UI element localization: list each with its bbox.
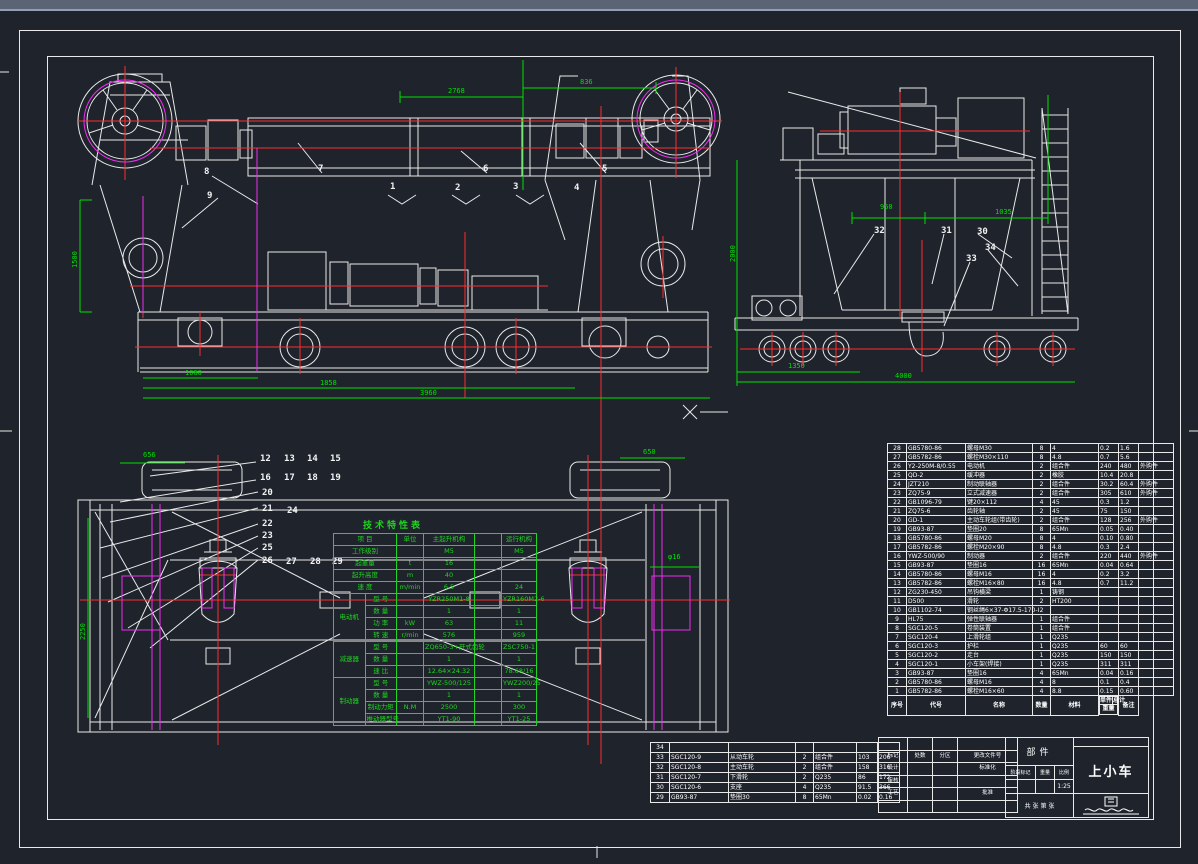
bom-cell: ZG230-450: [907, 588, 966, 597]
bom-cell: 8: [888, 624, 907, 633]
bom-cell: [1139, 471, 1174, 480]
parts-list-table: 28GB5780-86螺母M30840.21.627GB5782-86螺栓M30…: [887, 443, 1174, 716]
bom-cell: GB1102-74: [907, 606, 966, 615]
bom-cell: ZQ75-6: [907, 507, 966, 516]
tech-item-cell: 数 量: [365, 654, 397, 666]
bom-ext-cell: 下滑轮: [729, 773, 796, 783]
drawing-name-cell: 上小车: [1073, 746, 1149, 794]
bom-cell: 0.05: [1099, 525, 1119, 534]
bom-header-row: 序号代号名称数量材料单件总计重量备注: [888, 696, 1174, 716]
bom-cell: 螺母M30: [966, 444, 1033, 453]
bom-cell: 0.04: [1099, 669, 1119, 678]
table-row: 9HL75弹性联轴器1组合件: [888, 615, 1174, 624]
table-row: 22GB1096-79键20×1124450.31.2: [888, 498, 1174, 507]
table-row: 7SGC120-4上滑轮组1Q235: [888, 633, 1174, 642]
bom-header-cell: 代号: [907, 696, 966, 716]
tech-value-cell: 1: [424, 606, 475, 618]
bom-cell: 20.8: [1119, 471, 1139, 480]
bom-ext-cell: 组合件: [814, 753, 857, 763]
callout-number: 30: [977, 228, 988, 237]
bom-cell: Q235: [1051, 651, 1099, 660]
tech-value-cell: [475, 654, 502, 666]
cad-drawing-canvas[interactable]: 1234567893031323334121314151617181920212…: [0, 0, 1198, 864]
bom-cell: 1: [1033, 588, 1051, 597]
bom-ext-cell: 29: [651, 793, 670, 803]
bom-cell: 0.3: [1099, 498, 1119, 507]
bom-cell: 4: [1033, 678, 1051, 687]
bom-cell: 256: [1119, 516, 1139, 525]
callout-number: 23: [262, 532, 273, 541]
bom-cell: 4: [1051, 570, 1099, 579]
bom-cell: SGC120-2: [907, 651, 966, 660]
bom-cell: 0.4: [1119, 678, 1139, 687]
bom-cell: 螺栓M16×60: [966, 687, 1033, 696]
bom-cell: 28: [888, 444, 907, 453]
bom-cell: 4: [1033, 687, 1051, 696]
bom-cell: 2: [1033, 552, 1051, 561]
manufacturer-stamp-cell: [1073, 793, 1149, 818]
bom-cell: Q235: [1051, 633, 1099, 642]
bom-cell: 27: [888, 453, 907, 462]
revision-cell: [908, 788, 933, 801]
callout-number: 7: [318, 165, 323, 174]
tech-header-cell: 主起升机构: [424, 534, 475, 546]
tech-value-cell: YT1-90: [424, 714, 475, 726]
table-row: 15GB93-87垫圈161665Mn0.040.64: [888, 561, 1174, 570]
table-row: 28GB5780-86螺母M30840.21.6: [888, 444, 1174, 453]
tech-header-cell: [475, 534, 502, 546]
table-row: 23ZQ75-9立式减速器2组合件305610外购件: [888, 489, 1174, 498]
tech-value-cell: [397, 546, 424, 558]
tech-value-cell: [502, 570, 537, 582]
tech-value-cell: 576: [424, 630, 475, 642]
callout-number: 33: [966, 255, 977, 264]
bom-cell: 4: [1033, 669, 1051, 678]
bom-cell: 4: [1033, 498, 1051, 507]
bom-cell: Q235: [1051, 642, 1099, 651]
bom-cell: 0.40: [1119, 525, 1139, 534]
callout-number: 16: [260, 474, 271, 483]
bom-cell: GB5780-86: [907, 678, 966, 687]
bom-cell: 螺栓M30×110: [966, 453, 1033, 462]
bom-cell: GB1096-79: [907, 498, 966, 507]
callout-number: 1: [390, 183, 395, 192]
tech-value-cell: [397, 666, 424, 678]
bom-cell: 橡胶: [1051, 471, 1099, 480]
bom-cell: 2: [1033, 480, 1051, 489]
bom-cell: [1139, 453, 1174, 462]
bom-ext-cell: 2: [796, 773, 814, 783]
bom-cell: [1139, 525, 1174, 534]
bom-cell: 11.2: [1119, 579, 1139, 588]
bom-cell: 11: [888, 597, 907, 606]
bom-cell: 45: [1051, 498, 1099, 507]
weight-label: 重量: [1035, 765, 1055, 780]
revision-cell: [908, 738, 933, 751]
bom-ext-cell: [857, 743, 878, 753]
tech-value-cell: [475, 618, 502, 630]
bom-ext-cell: [814, 743, 857, 753]
bom-cell: [1139, 606, 1174, 615]
bom-ext-cell: 103: [857, 753, 878, 763]
callout-number: 12: [260, 455, 271, 464]
tech-value-cell: [475, 546, 502, 558]
bom-cell: 0.10: [1099, 534, 1119, 543]
bom-cell: 制动器: [966, 552, 1033, 561]
revision-cell: [933, 763, 958, 776]
callout-number: 34: [985, 244, 996, 253]
tech-item-cell: 转 速: [365, 630, 397, 642]
bom-cell: 1: [1033, 624, 1051, 633]
parts-list: 28GB5780-86螺母M30840.21.627GB5782-86螺栓M30…: [887, 443, 1174, 716]
tech-value-cell: 40: [424, 570, 475, 582]
bom-weight-header-cell: 单件总计重量: [1099, 696, 1118, 715]
dimension-label: 656: [143, 452, 156, 459]
bom-cell: 螺栓M20×90: [966, 543, 1033, 552]
bom-cell: GB5780-86: [907, 444, 966, 453]
tech-row: 起升高度m40: [334, 570, 537, 582]
callout-number: 28: [310, 558, 321, 567]
bom-cell: 弹性联轴器: [966, 615, 1033, 624]
bom-cell: 外购件: [1139, 552, 1174, 561]
tech-value-cell: 1: [502, 606, 537, 618]
bom-cell: 60: [1099, 642, 1119, 651]
revision-row: 审核: [879, 775, 1018, 788]
callout-number: 4: [574, 184, 579, 193]
bom-cell: 65Mn: [1051, 669, 1099, 678]
bom-cell: SGC120-5: [907, 624, 966, 633]
tech-item-cell: 型 号: [365, 594, 397, 606]
bom-cell: [1139, 561, 1174, 570]
tech-value-cell: r/min: [397, 630, 424, 642]
revision-cell: [908, 763, 933, 776]
bom-ext-cell: GB93-87: [670, 793, 729, 803]
bom-cell: [1099, 588, 1119, 597]
callout-number: 26: [262, 557, 273, 566]
revision-cell: [879, 800, 908, 813]
table-row: 32SGC120-8主动车轮2组合件158316: [651, 763, 900, 773]
bom-cell: 10.4: [1099, 471, 1119, 480]
tech-value-cell: 300: [502, 702, 537, 714]
bom-cell: [1099, 606, 1119, 615]
bom-cell: 5.6: [1119, 453, 1139, 462]
bom-cell: [1139, 642, 1174, 651]
tech-table-title: 技术特性表: [363, 518, 423, 531]
bom-cell: 螺栓M16×80: [966, 579, 1033, 588]
table-row: 24JZT210制动联轴器2组合件30.260.4外购件: [888, 480, 1174, 489]
bom-cell: GB5780-86: [907, 534, 966, 543]
callout-number: 14: [307, 455, 318, 464]
bom-cell: 1: [1033, 633, 1051, 642]
table-row: 20GD-1主动车轮组(带齿轮)2组合件128256外购件: [888, 516, 1174, 525]
tech-header-cell: 单位: [397, 534, 424, 546]
bom-cell: D500: [907, 597, 966, 606]
bom-cell: 2: [1033, 597, 1051, 606]
dimension-label: 1858: [320, 380, 337, 387]
bom-cell: 8: [1033, 543, 1051, 552]
bom-cell: 8: [1051, 678, 1099, 687]
tech-row: 减速器型 号ZQ650-3+开式齿轮ZSC750-1: [334, 642, 537, 654]
bom-cell: 2: [1033, 489, 1051, 498]
bom-cell: 0.64: [1119, 561, 1139, 570]
bom-cell: [1139, 660, 1174, 669]
table-row: 2GB5780-86螺母M16480.10.4: [888, 678, 1174, 687]
callout-number: 13: [284, 455, 295, 464]
tech-value-cell: 78.68/16: [502, 666, 537, 678]
bom-cell: 螺母M16: [966, 678, 1033, 687]
table-row: 25QD-2缓冲器2橡胶10.420.8: [888, 471, 1174, 480]
bom-cell: 16: [1033, 561, 1051, 570]
dimension-label: 836: [580, 79, 593, 86]
table-row: 5SGC120-2走台1Q235150150: [888, 651, 1174, 660]
bom-cell: [1139, 507, 1174, 516]
dimension-label: 2768: [448, 88, 465, 95]
tech-header-cell: 项 目: [334, 534, 397, 546]
tech-value-cell: [397, 594, 424, 606]
tech-value-cell: 1: [424, 690, 475, 702]
bom-cell: 220: [1099, 552, 1119, 561]
bom-header-cell: 数量: [1033, 696, 1051, 716]
tech-item-cell: 起升高度: [334, 570, 397, 582]
bom-cell: HT200: [1051, 597, 1099, 606]
bom-cell: [1099, 633, 1119, 642]
tech-value-cell: YT1-25: [502, 714, 537, 726]
tech-value-cell: [475, 702, 502, 714]
table-row: 14GB5780-86螺母M161640.23.2: [888, 570, 1174, 579]
bom-cell: 440: [1119, 552, 1139, 561]
bom-cell: 26: [888, 462, 907, 471]
bom-cell: 1: [1033, 642, 1051, 651]
bom-cell: 65Mn: [1051, 561, 1099, 570]
bom-cell: 610: [1119, 489, 1139, 498]
tech-value-cell: 63: [424, 618, 475, 630]
bom-cell: 卷筒装置: [966, 624, 1033, 633]
tech-value-cell: [397, 654, 424, 666]
dimension-label: 3960: [420, 390, 437, 397]
dimension-label: 1500: [72, 251, 79, 268]
tech-value-cell: [475, 594, 502, 606]
bom-cell: 垫圈16: [966, 669, 1033, 678]
callout-number: 6: [483, 165, 488, 174]
bom-cell: 钢丝绳6×37-Φ17.5-170-I: [966, 606, 1033, 615]
bom-ext-cell: 4: [796, 783, 814, 793]
tech-value-cell: YWZ-500/125: [424, 678, 475, 690]
tech-header-row: 项 目单位主起升机构运行机构: [334, 534, 537, 546]
tech-value-cell: YWZ200/25: [502, 678, 537, 690]
bom-cell: [1099, 615, 1119, 624]
bom-unit-weight-header: 单件: [1100, 697, 1113, 704]
tech-value-cell: 6.5: [424, 582, 475, 594]
revision-signature-grid: 标记处数分区更改文件号设计标准化审核工艺批准: [878, 737, 1018, 813]
tech-item-cell: 数 量: [365, 690, 397, 702]
tech-table: 项 目单位主起升机构运行机构工作级别M5M5起重量t16起升高度m40速 度m/…: [333, 533, 537, 726]
bom-cell: 8: [1033, 444, 1051, 453]
bom-cell: 2: [1033, 516, 1051, 525]
tech-value-cell: [475, 630, 502, 642]
bom-cell: [1139, 570, 1174, 579]
bom-cell: GB5782-86: [907, 543, 966, 552]
tech-row: 速 度m/min6.524: [334, 582, 537, 594]
bom-ext-cell: 垫圈30: [729, 793, 796, 803]
callout-number: 18: [307, 474, 318, 483]
table-row: 1GB5782-86螺栓M16×6048.80.150.60: [888, 687, 1174, 696]
tech-value-cell: ZSC750-1: [502, 642, 537, 654]
bom-cell: 组合件: [1051, 489, 1099, 498]
bom-cell: 0.1: [1099, 678, 1119, 687]
bom-cell: 立式减速器: [966, 489, 1033, 498]
bom-cell: 17: [888, 543, 907, 552]
bom-cell: 0.7: [1099, 579, 1119, 588]
stage-mark-label: 阶段标记: [1005, 765, 1036, 780]
tech-value-cell: 16: [424, 558, 475, 570]
bom-cell: [1139, 579, 1174, 588]
bom-cell: 0.2: [1099, 444, 1119, 453]
part-kind-cell: 部件: [1005, 737, 1074, 766]
bom-cell: [1139, 444, 1174, 453]
bom-cell: QD-2: [907, 471, 966, 480]
bom-cell: [1139, 543, 1174, 552]
bom-cell: 16: [1033, 579, 1051, 588]
bom-cell: Q235: [1051, 660, 1099, 669]
tech-value-cell: N.M: [397, 702, 424, 714]
tech-value-cell: M5: [424, 546, 475, 558]
tech-value-cell: [475, 558, 502, 570]
bom-cell: 150: [1099, 651, 1119, 660]
callout-number: 25: [262, 544, 273, 553]
callout-number: 9: [207, 192, 212, 201]
bom-cell: [1139, 534, 1174, 543]
bom-cell: 外购件: [1139, 480, 1174, 489]
bom-cell: [1139, 687, 1174, 696]
tech-group-cell: 制动器: [334, 678, 366, 726]
bom-cell: 16: [888, 552, 907, 561]
bom-cell: 0.15: [1099, 687, 1119, 696]
callout-number: 27: [286, 558, 297, 567]
bom-cell: 螺母M20: [966, 534, 1033, 543]
bom-ext-cell: 从动车轮: [729, 753, 796, 763]
bom-cell: [1119, 615, 1139, 624]
bom-cell: 主动车轮组(带齿轮): [966, 516, 1033, 525]
callout-number: 22: [262, 520, 273, 529]
bom-cell: 30.2: [1099, 480, 1119, 489]
table-row: 10GB1102-74钢丝绳6×37-Φ17.5-170-I2: [888, 606, 1174, 615]
bom-cell: 垫圈20: [966, 525, 1033, 534]
stage-mark-value: [1005, 779, 1036, 794]
revision-cell: 工艺: [879, 788, 908, 801]
tech-value-cell: 12.64×24.32: [424, 666, 475, 678]
bom-cell: [1139, 624, 1174, 633]
table-row: 4SGC120-1小车架(焊接)1Q235311311: [888, 660, 1174, 669]
bom-cell: 缓冲器: [966, 471, 1033, 480]
tech-value-cell: 1: [424, 654, 475, 666]
bom-ext-cell: Q235: [814, 773, 857, 783]
revision-cell: 设计: [879, 763, 908, 776]
table-row: 11D500滑轮2HT200: [888, 597, 1174, 606]
parts-list-extension-table: 3433SGC120-9从动车轮2组合件10320632SGC120-8主动车轮…: [650, 742, 900, 803]
bom-cell: 吊钩横梁: [966, 588, 1033, 597]
tech-value-cell: kW: [397, 618, 424, 630]
tech-value-cell: m/min: [397, 582, 424, 594]
bom-cell: GB5780-86: [907, 570, 966, 579]
callout-number: 3: [513, 183, 518, 192]
tech-item-cell: 工作级别: [334, 546, 397, 558]
bom-ext-cell: 33: [651, 753, 670, 763]
table-row: 17GB5782-86螺栓M20×9084.80.32.4: [888, 543, 1174, 552]
bom-cell: ZQ75-9: [907, 489, 966, 498]
bom-cell: 8: [1033, 453, 1051, 462]
dimension-label: 4000: [895, 373, 912, 380]
tech-value-cell: t: [397, 558, 424, 570]
table-row: 8SGC120-5卷筒装置1组合件: [888, 624, 1174, 633]
bom-cell: HL75: [907, 615, 966, 624]
bom-cell: Y2-250M-8/0.55: [907, 462, 966, 471]
revision-row: 设计标准化: [879, 763, 1018, 776]
bom-cell: GB93-87: [907, 561, 966, 570]
tech-value-cell: [502, 558, 537, 570]
bom-cell: [1099, 597, 1119, 606]
parts-list-extension: 3433SGC120-9从动车轮2组合件10320632SGC120-8主动车轮…: [650, 742, 900, 803]
bom-cell: 45: [1051, 507, 1099, 516]
bom-cell: 外购件: [1139, 489, 1174, 498]
bom-cell: 10: [888, 606, 907, 615]
tech-value-cell: 959: [502, 630, 537, 642]
bom-cell: JZT210: [907, 480, 966, 489]
tech-value-cell: 24: [502, 582, 537, 594]
bom-cell: 组合件: [1051, 462, 1099, 471]
bom-cell: 2.4: [1119, 543, 1139, 552]
bom-cell: 150: [1119, 651, 1139, 660]
tech-value-cell: m: [397, 570, 424, 582]
bom-cell: 25: [888, 471, 907, 480]
tech-value-cell: 1: [502, 690, 537, 702]
callout-number: 8: [204, 168, 209, 177]
bom-cell: 4.8: [1051, 543, 1099, 552]
revision-cell: 处数: [908, 750, 933, 763]
revision-cell: 标记: [879, 750, 908, 763]
tech-item-cell: 推动器型号: [365, 714, 397, 726]
bom-cell: SGC120-3: [907, 642, 966, 651]
bom-cell: 305: [1099, 489, 1119, 498]
bom-cell: 0.7: [1099, 453, 1119, 462]
bom-cell: 2: [1033, 462, 1051, 471]
table-row: 18GB5780-86螺母M20840.100.80: [888, 534, 1174, 543]
revision-cell: [933, 738, 958, 751]
bom-cell: 16: [1033, 570, 1051, 579]
tech-value-cell: YZR160M2-6: [502, 594, 537, 606]
table-row: 6SGC120-3护栏1Q2356060: [888, 642, 1174, 651]
scale-label: 比例: [1054, 765, 1074, 780]
bom-cell: 键20×112: [966, 498, 1033, 507]
bom-cell: 组合件: [1051, 516, 1099, 525]
bom-cell: 组合件: [1051, 480, 1099, 489]
bom-cell: GB93-87: [907, 669, 966, 678]
bom-cell: 1.2: [1119, 498, 1139, 507]
bom-cell: 240: [1099, 462, 1119, 471]
tech-value-cell: YZR250M1-8: [424, 594, 475, 606]
technical-characteristics-table: 项 目单位主起升机构运行机构工作级别M5M5起重量t16起升高度m40速 度m/…: [333, 533, 537, 726]
bom-ext-cell: 34: [651, 743, 670, 753]
callout-number: 21: [262, 505, 273, 514]
bom-cell: 5: [888, 651, 907, 660]
tech-value-cell: [475, 666, 502, 678]
bom-cell: [1051, 606, 1099, 615]
table-row: 13GB5782-86螺栓M16×80164.80.711.2: [888, 579, 1174, 588]
dimension-label: 650: [643, 449, 656, 456]
bom-cell: 60: [1119, 642, 1139, 651]
bom-cell: 20: [888, 516, 907, 525]
bom-cell: 65Mn: [1051, 525, 1099, 534]
tech-item-cell: 起重量: [334, 558, 397, 570]
